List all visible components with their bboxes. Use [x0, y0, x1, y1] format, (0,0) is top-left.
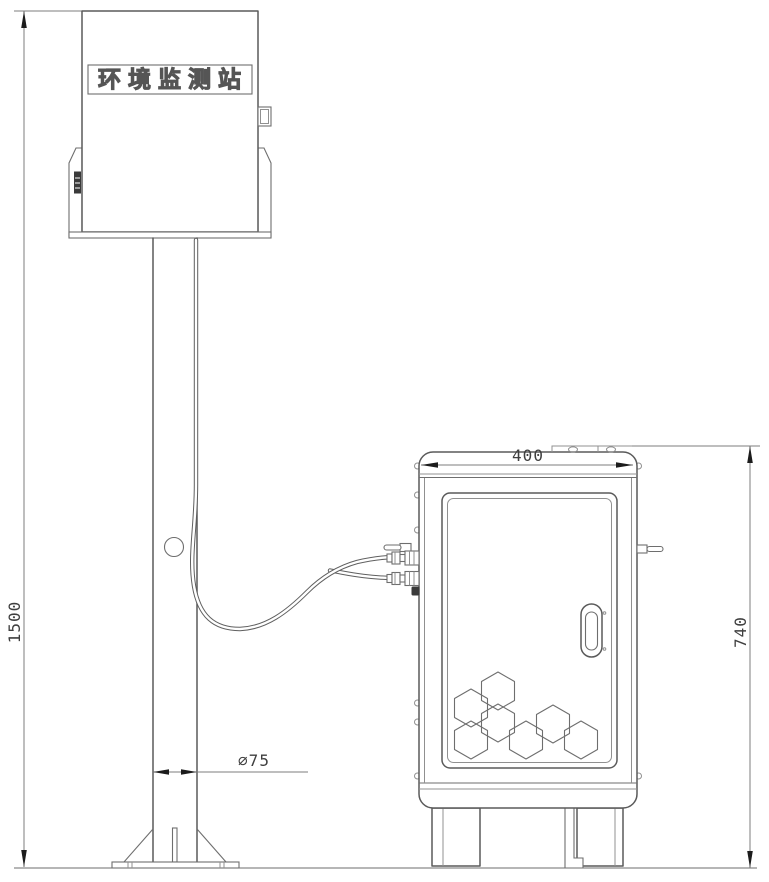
door-handle	[581, 604, 606, 657]
dimension-label-400: 400	[512, 446, 544, 465]
head-box-outline	[82, 11, 258, 232]
dimension-label-75: ∅75	[238, 751, 270, 770]
base-gusset-right	[197, 829, 226, 862]
drawing-canvas: 1500 环境监测站	[0, 0, 769, 882]
pole-cable-hole	[165, 538, 184, 557]
right-rod	[647, 547, 663, 552]
base-gusset-left	[124, 829, 153, 862]
dimension-label-1500: 1500	[5, 601, 24, 644]
cable-connector-upper	[387, 551, 419, 565]
arrowhead-right-icon	[181, 769, 197, 775]
aux-port-icon	[412, 587, 419, 595]
monitoring-station-head: 环境监测站	[69, 11, 271, 238]
cable-connector-lower	[387, 572, 419, 586]
base-anchor-bolt	[173, 828, 178, 862]
pole-base	[112, 828, 239, 868]
station-name-label: 环境监测站	[98, 66, 248, 93]
cabinet-top-rail	[552, 446, 632, 452]
cabinet-legs	[432, 808, 623, 868]
dimension-label-740: 740	[731, 616, 750, 648]
environmental-station-drawing: 1500 环境监测站	[0, 0, 769, 882]
cabinet-right-rod	[637, 545, 663, 553]
dimension-pole-diameter: ∅75	[153, 751, 308, 775]
sensor-rod-base	[400, 544, 411, 552]
arrowhead-up-icon	[747, 446, 753, 463]
head-hinge-icon	[75, 172, 81, 193]
head-bottom-lip	[69, 232, 271, 238]
cabinet-leg-left	[432, 808, 480, 866]
dimension-cabinet-height: 740	[632, 446, 760, 868]
sensor-rod-left	[384, 545, 401, 550]
cabinet-leg-right	[577, 808, 623, 866]
connection-cables	[192, 240, 392, 629]
equipment-cabinet	[384, 446, 663, 868]
arrowhead-down-icon	[747, 851, 753, 868]
cable-upper	[192, 240, 392, 629]
right-rod-base	[637, 545, 647, 553]
cabinet-left-fittings	[384, 544, 419, 596]
head-side-panel-right	[258, 148, 271, 237]
arrowhead-left-icon	[153, 769, 169, 775]
cabinet-body	[419, 452, 637, 808]
dimension-pole-height: 1500	[5, 11, 82, 867]
arrowhead-down-icon	[21, 850, 27, 867]
arrowhead-up-icon	[21, 11, 27, 28]
